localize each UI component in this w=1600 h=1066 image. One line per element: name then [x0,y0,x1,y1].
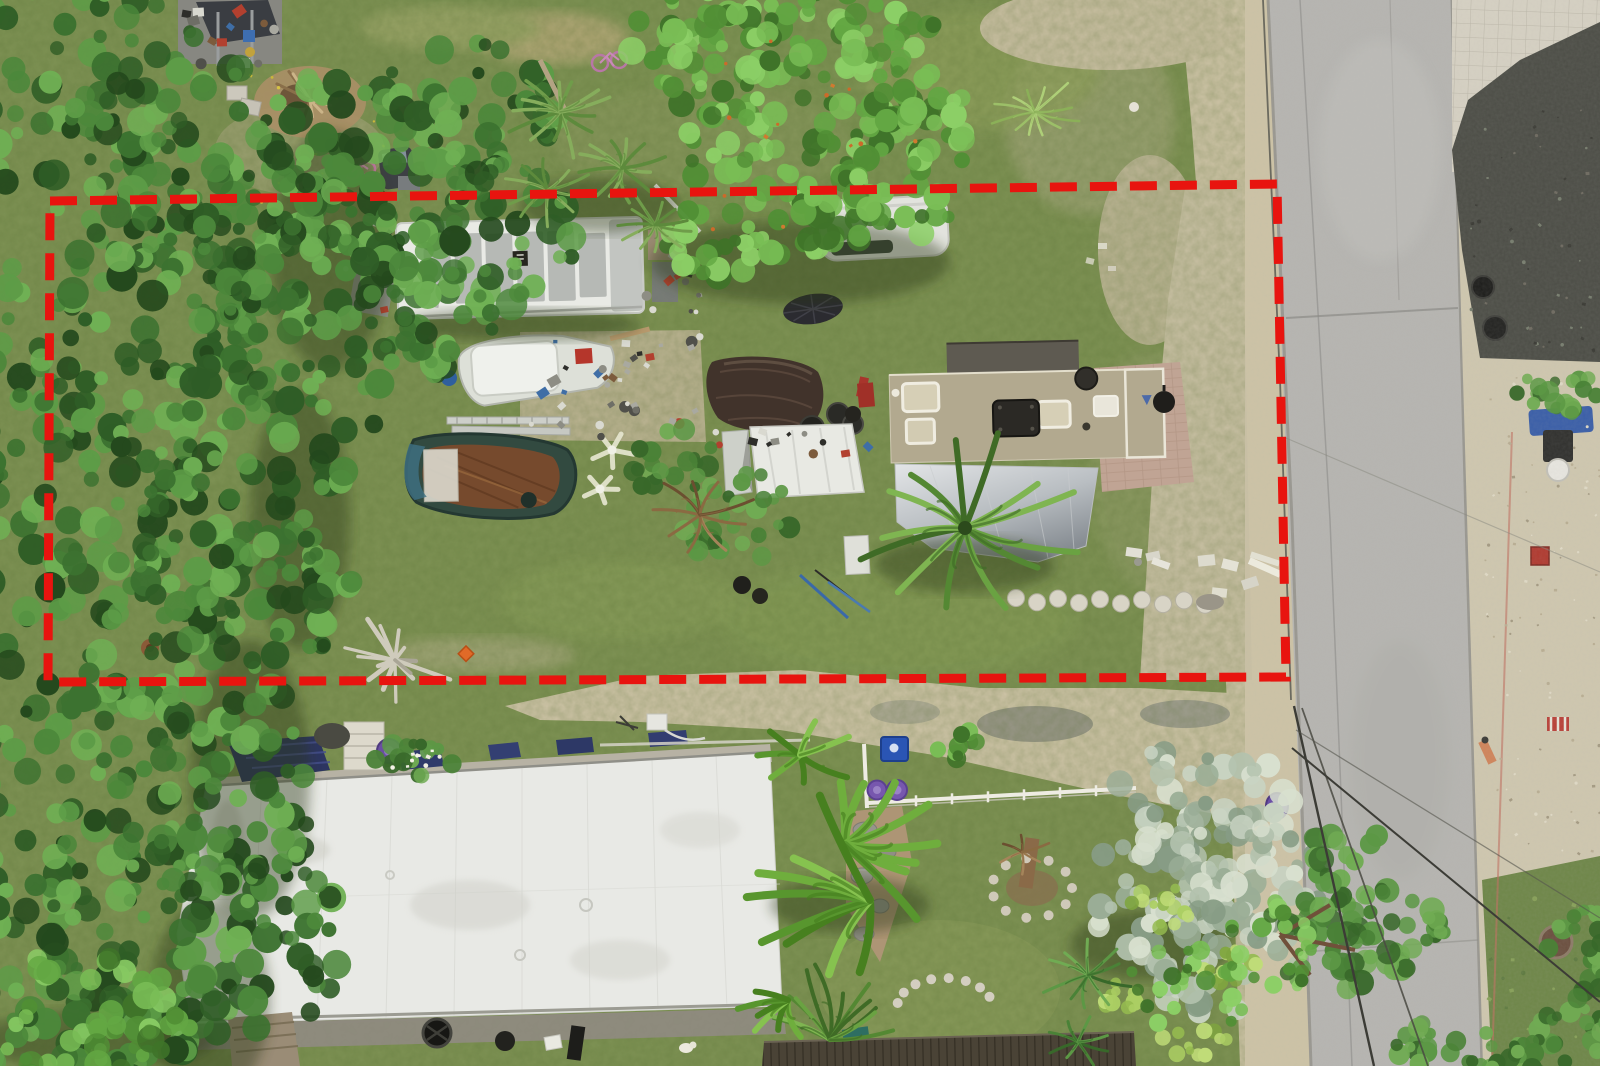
white-flowers [423,763,428,768]
canopy-foliage [123,822,144,843]
grass-shrub [1278,919,1293,934]
canopy-foliage [383,151,407,175]
overhang-tree-foliage [1328,831,1347,850]
canopy-foliage [244,395,261,412]
canopy-foliage [267,456,296,485]
canopy-foliage [475,122,502,149]
canopy-foliage [59,802,80,823]
tree-foliage [802,3,816,17]
canopy-foliage [122,389,143,410]
canopy-foliage [236,453,258,475]
roof-stain [410,880,530,930]
canopy-foliage [233,246,257,270]
canopy-foliage [302,639,318,655]
canopy-foliage [261,641,290,670]
canopy-foliage [95,516,123,544]
canopy-foliage [308,122,338,152]
skylight [1038,401,1071,428]
shrub-foliage [1567,909,1582,924]
fan-hub [596,485,605,494]
tree-foliage [915,209,930,224]
canopy-foliage [230,725,260,755]
canopy-foliage [109,456,141,488]
silver-tree-foliage [1146,805,1163,822]
overhang-tree-foliage [1420,934,1433,947]
canopy-foliage [365,316,378,329]
canopy-foliage [224,304,236,316]
canopy-foliage [136,760,153,777]
shrub-foliage [1575,381,1592,398]
shrub-foliage [752,547,771,566]
canopy-foliage [298,816,314,832]
canopy-foliage [309,547,323,561]
canopy-foliage [428,133,444,149]
canopy-foliage [284,218,302,236]
shrub-foliage [631,463,645,477]
canopy-foliage [302,965,324,987]
shrub-foliage [1546,1036,1563,1053]
canopy-foliage [309,433,340,464]
tree-foliage [703,106,722,125]
canopy-foliage [209,544,234,569]
yellow-shrub [1186,1046,1194,1054]
tree-foliage [712,80,735,103]
canopy-foliage [161,897,178,914]
canopy-foliage [479,217,504,242]
canopy-foliage [243,693,266,716]
border-stone [975,983,985,993]
canopy-foliage [556,222,586,252]
overhang-tree-foliage [1366,825,1388,847]
canopy-foliage [94,371,108,385]
canopy-foliage [156,88,181,113]
canopy-foliage [257,914,271,928]
roof-stain [570,940,670,980]
canopy-foliage [365,415,384,434]
overhang-tree-foliage [1405,894,1420,909]
canopy-foliage [89,311,111,333]
shrub-foliage [1391,1039,1403,1051]
canopy-foliage [357,85,373,101]
canopy-foliage [39,160,70,191]
shrub-foliage [1526,1035,1539,1048]
canopy-foliage [108,780,127,799]
junk-item [595,421,604,430]
stepping-stone [1050,590,1067,607]
canopy-foliage [309,610,336,637]
grass-shrub [1283,963,1296,976]
canopy-foliage [295,74,323,102]
silver-tree-foliage [1105,901,1118,914]
shrub-foliage [1579,1015,1594,1030]
shrub-foliage [1479,1026,1493,1040]
yellow-leaf [271,76,274,79]
boat-cabin [470,340,559,396]
canopy-foliage [71,863,88,880]
shrub-foliage [673,419,695,441]
tree-foliage [738,109,755,126]
canopy-foliage [295,173,315,193]
canopy-foliage [137,339,162,364]
overhang-tree-foliage [1422,911,1435,924]
canopy-foliage [105,880,136,911]
shrub-foliage [1565,406,1579,420]
canopy-foliage [248,323,268,343]
canopy-foliage [84,176,107,199]
canopy-foliage [365,369,395,399]
canopy-foliage [314,479,330,495]
tree-flower [824,93,829,98]
canopy-foliage [474,171,495,192]
shrub-foliage [1581,940,1598,957]
overhang-tree-foliage [1397,959,1416,978]
canopy-foliage [53,13,76,36]
junk-item [621,340,630,347]
canopy-foliage [25,874,47,896]
canopy-foliage [193,215,216,238]
silver-tree-foliage [1214,825,1233,844]
tree-foliage [891,65,904,78]
canopy-foliage [57,277,89,309]
canopy-foliage [473,289,486,302]
canopy-foliage [415,242,434,261]
canopy-foliage [438,340,460,362]
canopy-foliage [87,223,106,242]
tree-flower [724,62,727,65]
canopy-foliage [95,112,114,131]
canopy-foliage [302,360,314,372]
tree-foliage [729,235,741,247]
canopy-foliage [65,98,85,118]
canopy-foliage [220,949,234,963]
silver-tree-foliage [1118,873,1134,889]
overhang-tree-foliage [1322,951,1341,970]
yellow-shrub [1169,1045,1186,1062]
canopy-foliage [250,771,278,799]
bbq-grill [1153,391,1175,413]
yellow-leaf [277,86,280,89]
grass-shrub [1149,1014,1167,1032]
canopy-foliage [222,407,245,430]
canopy-foliage [144,485,157,498]
tree-flower [858,141,863,146]
junk-item [254,60,262,68]
tree-flower [913,139,917,143]
canopy-foliage [2,738,26,762]
grass-shrub [1167,1001,1181,1015]
canopy-foliage [280,764,295,779]
canopy-foliage [386,66,398,78]
shrub-foliage [735,536,750,551]
tree-foliage [848,225,870,247]
shrub-foliage [633,477,651,495]
tree-foliage [917,138,941,162]
silver-tree-foliage [1247,763,1262,778]
canopy-foliage [317,639,331,653]
canopy-foliage [187,294,203,310]
canopy-foliage [132,206,158,232]
canopy-foliage [50,41,64,55]
shrub-foliage [733,473,751,491]
grass-shrub [1191,941,1210,960]
canopy-foliage [397,311,412,326]
canopy-foliage [108,603,129,624]
stepping-stone [1029,594,1046,611]
junk-item [617,378,622,382]
canopy-foliage [233,223,245,235]
canopy-foliage [2,312,15,325]
junk-item [633,407,640,414]
tree-foliage [946,94,961,109]
grass-shrub [1298,917,1310,929]
skylight [902,383,939,412]
canopy-foliage [332,152,354,174]
junk-item [642,291,652,301]
tree-foliage [716,40,728,52]
tree-foliage [875,109,898,132]
canopy-foliage [312,256,332,276]
canopy-foliage [138,911,151,924]
junk-item [696,293,701,298]
canopy-foliage [71,408,96,433]
canopy-foliage [12,596,42,626]
white-flowers [431,750,434,753]
canopy-foliage [166,1006,184,1024]
tree-flower [711,227,715,231]
canopy-foliage [191,473,210,492]
canopy-foliage [249,520,263,534]
canopy-foliage [222,691,246,715]
canopy-foliage [158,781,182,805]
canopy-foliage [2,57,26,81]
canopy-foliage [224,600,237,613]
canopy-foliage [84,153,96,165]
canopy-foliage [453,305,472,324]
canopy-foliage [142,545,159,562]
white-flowers [411,752,415,756]
canopy-foliage [278,233,301,256]
ring-stone [989,875,999,885]
canopy-foliage [19,1009,34,1024]
canopy-foliage [445,150,461,166]
canopy-foliage [229,789,247,807]
canopy-foliage [149,632,163,646]
yellow-shrub [1168,918,1181,931]
shrub-foliage [754,468,767,481]
junk-item [820,439,827,446]
home-end-cap [1125,369,1165,458]
canopy-foliage [236,203,258,225]
grass-shrub [1182,964,1192,974]
yellow-shrub [1220,1033,1233,1046]
red-toolbox [857,382,875,407]
shrub-foliage [631,440,649,458]
canopy-foliage [298,867,313,882]
canopy-foliage [34,729,60,755]
grass-shrub [1305,944,1317,956]
canopy-foliage [329,457,358,486]
canopy-foliage [291,764,315,788]
canopy-foliage [78,450,100,472]
grass-shrub [1183,946,1193,956]
canopy-foliage [263,560,278,575]
junk-item [553,340,557,343]
canopy-foliage [278,107,305,134]
junk-item [217,38,227,46]
canopy-foliage [169,918,197,946]
border-stone [899,988,909,998]
junk-item [193,8,205,17]
canopy-foliage [363,213,376,226]
tree-foliage [741,247,760,266]
canopy-foliage [315,399,332,416]
canopy-foliage [304,314,317,327]
ring-stone [1001,906,1011,916]
junk-item [599,365,607,373]
canopy-foliage [167,712,190,735]
canopy-foliage [185,814,202,831]
stepping-stone [1155,596,1172,613]
canopy-foliage [207,826,234,853]
grass-shrub [1151,945,1166,960]
yellow-shrub [1172,1027,1184,1039]
canopy-foliage [281,363,300,382]
yellow-shrub [1170,884,1180,894]
silver-tree-foliage [1255,856,1278,879]
tree-foliage [872,43,891,62]
canopy-foliage [243,651,261,669]
shrub-foliage [1568,988,1588,1008]
white-rock [1129,102,1139,112]
canopy-foliage [237,986,268,1017]
overhang-tree-foliage [1363,950,1378,965]
shrub-foliage [414,768,430,784]
canopy-foliage [203,270,218,285]
canopy-foliage [327,90,355,118]
shrub-foliage [1486,1040,1498,1052]
canopy-foliage [386,285,400,299]
junk-item [196,58,207,69]
canopy-foliage [39,71,62,94]
canopy-foliage [7,439,25,457]
silver-tree-foliage [1170,792,1188,810]
derelict-boat [402,430,578,522]
tree-foliage [900,97,927,124]
canopy-foliage [151,132,166,147]
aerial-photo [0,0,1600,1066]
tree-foliage [696,265,711,280]
silver-tree-foliage [1150,761,1175,786]
canopy-foliage [131,409,155,433]
canopy-foliage [270,628,284,642]
canopy-foliage [378,203,396,221]
canopy-foliage [80,969,102,991]
yellow-shrub [1160,891,1175,906]
canopy-foliage [396,231,410,245]
silver-tree-foliage [1269,779,1296,806]
dark-pot [845,406,861,422]
canopy-foliage [235,949,264,978]
ring-stone [1067,883,1077,893]
canopy-foliage [166,57,194,85]
shrub-foliage [1527,397,1540,410]
tree-foliage [758,240,784,266]
shrub-foliage [442,754,461,773]
tree-foliage [766,140,785,159]
tree-foliage [722,203,744,225]
canopy-foliage [515,236,530,251]
shrub-foliage [1446,1031,1466,1051]
canopy-foliage [302,378,319,395]
canopy-foliage [272,167,298,193]
canopy-foliage [479,38,492,51]
canopy-foliage [78,733,95,750]
canopy-foliage [190,74,217,101]
tree-flower [848,88,851,91]
canopy-foliage [154,834,169,849]
grass-shrub [1226,1016,1237,1027]
canopy-foliage [15,830,37,852]
yellow-shrub [1182,910,1194,922]
canopy-foliage [226,926,252,952]
canopy-foliage [198,242,211,255]
junk-item [637,351,643,356]
tree-foliage [762,101,788,127]
dark-equipment [314,723,350,749]
silver-tree-foliage [1263,802,1284,823]
tree-foliage [659,32,674,47]
canopy-foliage [37,960,61,984]
silver-tree-foliage [1231,901,1251,921]
solar-panel [488,742,521,760]
shrub-foliage [773,520,784,531]
red-cooler [575,348,593,364]
roof-stain [660,812,740,848]
border-stone [944,973,954,983]
canopy-foliage [11,127,23,139]
tree-foliage [856,196,881,221]
silver-tree-foliage [1198,796,1213,811]
ring-stone [1044,856,1054,866]
canopy-foliage [395,331,416,352]
yellow-shrub [1249,957,1263,971]
canopy-foliage [134,559,147,572]
tree-flower [723,194,727,198]
canopy-foliage [229,101,249,121]
shrub-foliage [1551,920,1565,934]
canopy-foliage [491,40,510,59]
canopy-foliage [164,591,195,622]
canopy-foliage [106,72,129,95]
canopy-foliage [60,1030,82,1052]
canopy-foliage [111,497,125,511]
silver-tree-foliage [1202,752,1215,765]
junk-item [269,25,279,35]
junk-item [597,433,605,441]
junk-item [529,422,534,427]
yellow-shrub [1198,1048,1213,1063]
silver-tree-foliage [1129,937,1151,959]
canopy-foliage [171,112,188,129]
canopy-foliage [187,965,216,994]
shrub-foliage [1509,385,1524,400]
tree-foliage [703,5,728,30]
canopy-foliage [183,557,212,586]
canopy-foliage [114,343,139,368]
canopy-foliage [210,573,235,598]
canopy-foliage [142,1025,156,1039]
stepping-stone [1008,590,1025,607]
